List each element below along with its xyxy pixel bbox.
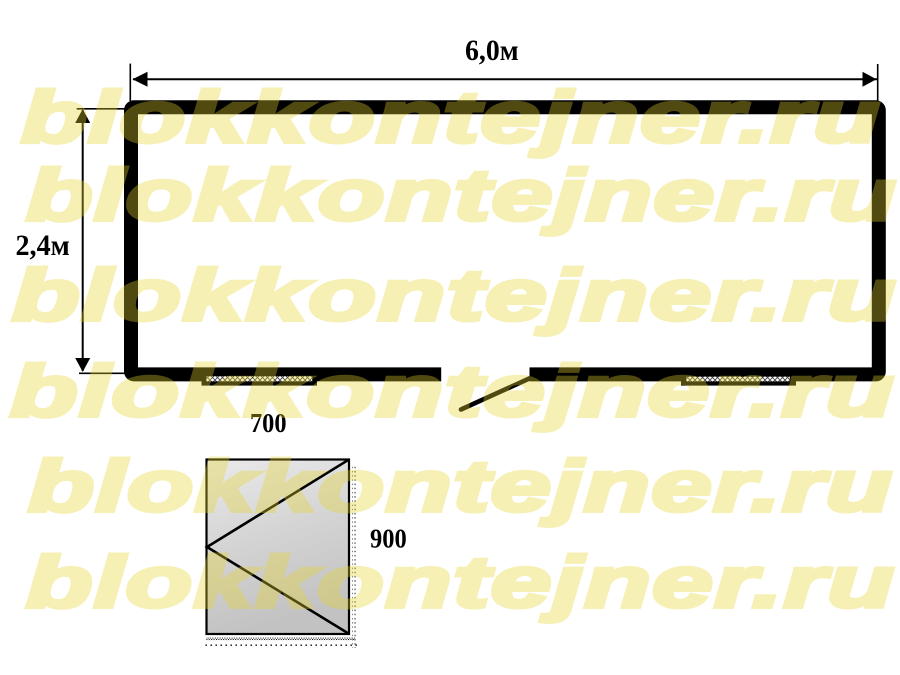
svg-text:6,0м: 6,0м: [465, 34, 519, 67]
